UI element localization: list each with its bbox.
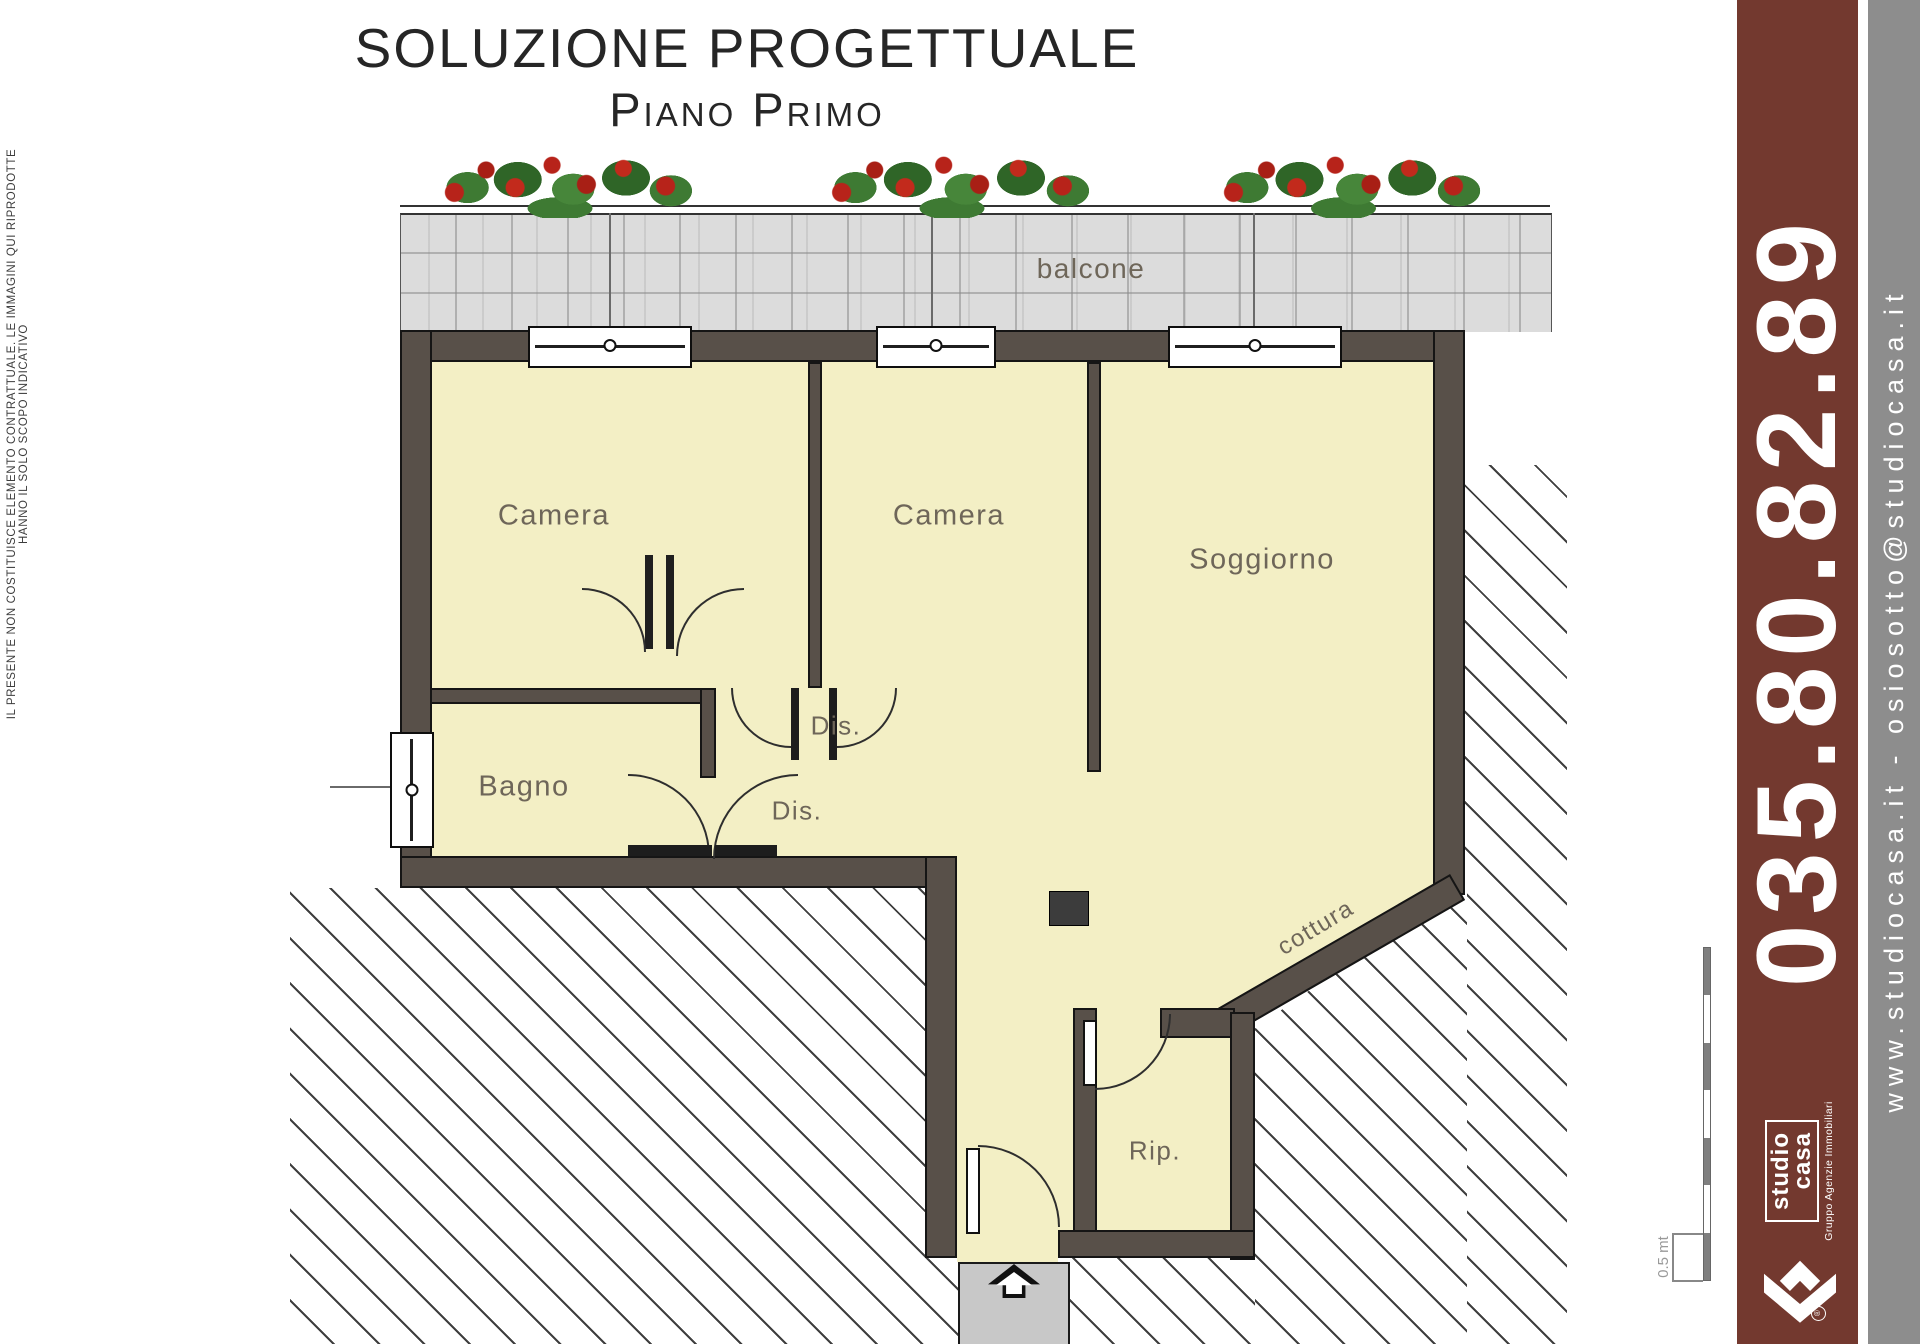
label-camera2: Camera	[893, 500, 1005, 533]
label-camera1: Camera	[498, 500, 610, 533]
scale-segment	[1704, 1043, 1710, 1090]
scale-label: 0.5 mt	[1638, 1232, 1688, 1282]
wall-south-left	[400, 856, 957, 888]
logo-name-box: studio casa	[1765, 1120, 1819, 1222]
page-subtitle: Piano Primo	[297, 82, 1197, 137]
label-balcony: balcone	[1037, 253, 1146, 285]
door-leaf	[715, 845, 777, 856]
scale-segment	[1704, 1138, 1710, 1185]
room-fill-entry-gap	[957, 1232, 1058, 1262]
partition-camera1-camera2	[808, 362, 822, 688]
partition-camera2-living	[1087, 362, 1101, 772]
window-handle-icon	[930, 339, 943, 352]
flue-pillar	[1049, 891, 1089, 926]
scale-bar	[1703, 947, 1711, 1281]
flowers-decoration	[814, 138, 1090, 218]
door-leaf	[791, 688, 799, 760]
scale-segment	[1704, 948, 1710, 995]
wall-south-bottom	[1058, 1230, 1255, 1258]
wall-east	[1433, 330, 1465, 895]
scale-segment	[1704, 1233, 1710, 1280]
door-leaf	[628, 845, 712, 856]
hatch-area-below-storage	[1070, 1258, 1255, 1344]
partition-bath-east-stub	[700, 688, 716, 778]
wall-storage-east	[1230, 1012, 1255, 1260]
balcony-floor	[400, 213, 1552, 332]
agency-website-email: www.studiocasa.it - osiosotto@studiocasa…	[1870, 70, 1918, 1330]
page-title: SOLUZIONE PROGETTUALE	[297, 16, 1197, 80]
window	[1168, 326, 1342, 368]
agency-phone-number: 035.80.82.89	[1737, 110, 1857, 1090]
window	[528, 326, 692, 368]
logo-tagline: Gruppo Agenzie Immobiliari	[1823, 1101, 1835, 1240]
hatch-area-bottom-left	[290, 888, 958, 1344]
wall-corridor-west	[925, 856, 957, 1258]
logo-text-block: studio casa Gruppo Agenzie Immobiliari	[1765, 1101, 1835, 1240]
label-living: Soggiorno	[1189, 544, 1335, 577]
window-handle-icon	[406, 784, 419, 797]
scale-segment	[1704, 1185, 1710, 1232]
flowers-decoration	[428, 138, 692, 218]
wall-storage-north	[1160, 1008, 1235, 1038]
studio-casa-logomark-icon: ®	[1764, 1251, 1836, 1323]
floorplan-page: SOLUZIONE PROGETTUALE Piano Primo IL PRE…	[0, 0, 1920, 1344]
flowers-decoration	[1206, 138, 1481, 218]
logo-name-line2: casa	[1792, 1132, 1814, 1210]
registered-mark-icon: ®	[1811, 1306, 1826, 1321]
pocket-door-jamb	[666, 555, 674, 649]
label-storage: Rip.	[1129, 1136, 1181, 1167]
disclaimer-text: IL PRESENTE NON COSTITUISCE ELEMENTO CON…	[6, 129, 22, 739]
window	[876, 326, 996, 368]
hatch-area-right	[1465, 465, 1567, 1344]
label-hall-upper: Dis.	[811, 711, 862, 742]
bath-window	[390, 732, 434, 848]
window-handle-icon	[604, 339, 617, 352]
partition-bath-north	[430, 688, 708, 704]
label-hall-lower: Dis.	[772, 796, 823, 827]
pocket-door-jamb	[645, 555, 653, 649]
scale-segment	[1704, 995, 1710, 1042]
studio-casa-logo: ® studio casa Gruppo Agenzie Immobiliari	[1745, 1102, 1855, 1322]
window-handle-icon	[1249, 339, 1262, 352]
page-title-block: SOLUZIONE PROGETTUALE Piano Primo	[297, 16, 1197, 137]
scale-segment	[1704, 1090, 1710, 1137]
label-bath: Bagno	[478, 771, 569, 804]
